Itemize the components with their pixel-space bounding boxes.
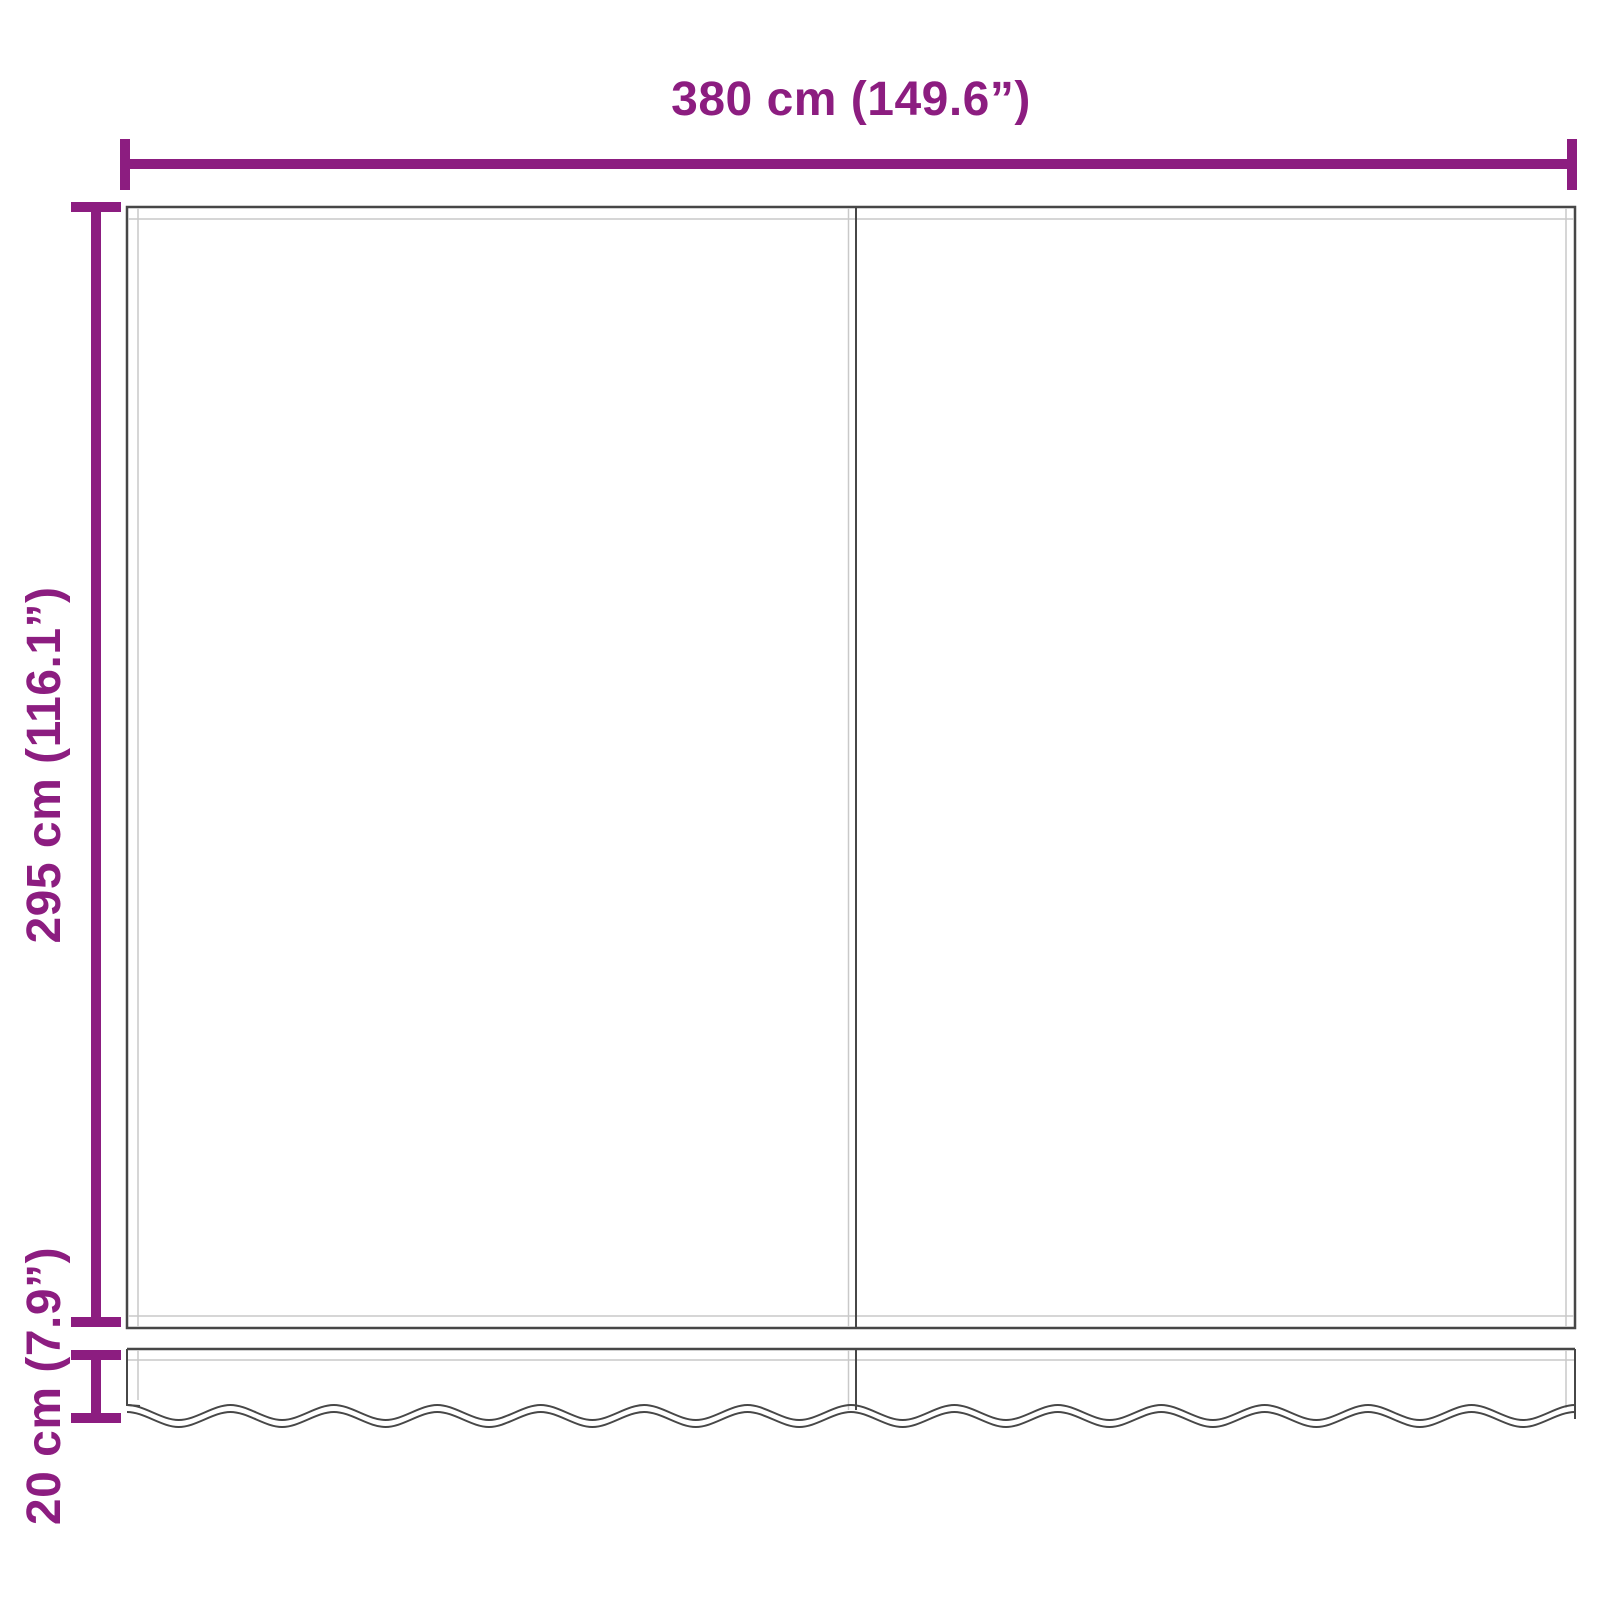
height-dimension [71, 207, 121, 1322]
valance [127, 1349, 1575, 1427]
width-dimension [125, 139, 1572, 190]
fabric-panel [127, 207, 1575, 1328]
height-dimension-label: 295 cm (116.1”) [17, 545, 73, 985]
dimension-diagram [0, 0, 1600, 1600]
valance-dimension [71, 1355, 121, 1418]
diagram-stage: 380 cm (149.6”) 295 cm (116.1”) 20 cm (7… [0, 0, 1600, 1600]
fabric-panel-outline [127, 207, 1575, 1328]
valance-dimension-label: 20 cm (7.9”) [17, 1166, 73, 1606]
valance-wave-lower [127, 1412, 1575, 1427]
width-dimension-label: 380 cm (149.6”) [127, 72, 1575, 128]
